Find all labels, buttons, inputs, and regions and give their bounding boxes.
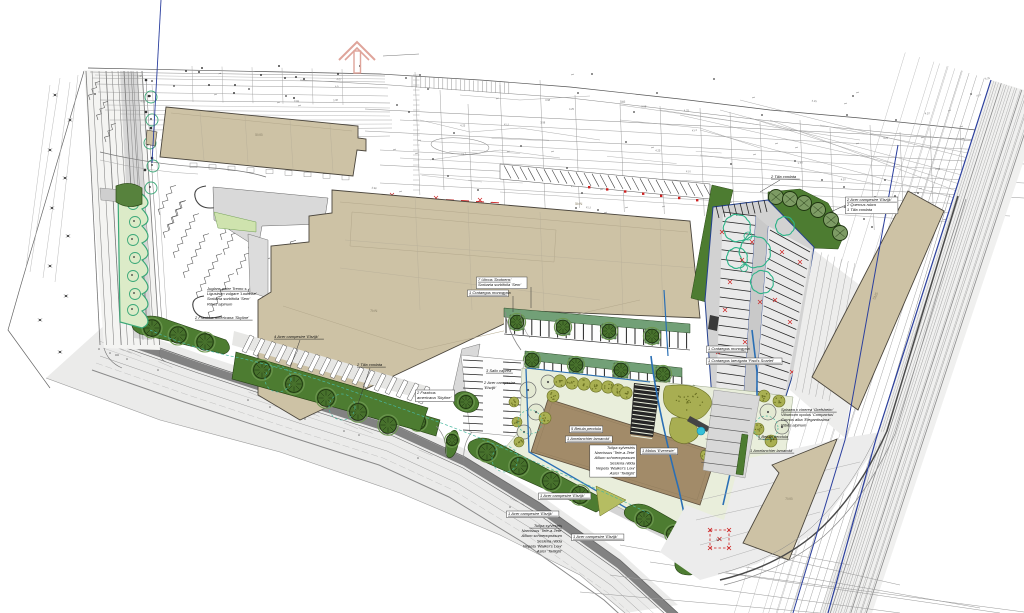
svg-text:americana 'Skyline': americana 'Skyline' [417,395,451,400]
svg-text:'Elsrijk': 'Elsrijk' [484,385,496,390]
svg-text:7M5: 7M5 [785,496,794,501]
svg-text:1 Crataegus laevigata 'Paul's: 1 Crataegus laevigata 'Paul's Scarlet' [708,358,774,363]
svg-text:1 Tilia cordata: 1 Tilia cordata [847,207,873,212]
svg-text:1 Amelanchier lamarckii: 1 Amelanchier lamarckii [567,436,609,441]
svg-text:4.07: 4.07 [686,169,692,173]
svg-text:VP: VP [716,538,721,542]
svg-text:Sorbaria sorbifolia 'Sem': Sorbaria sorbifolia 'Sem' [478,282,521,287]
svg-text:Aster 'Twilight': Aster 'Twilight' [536,549,562,554]
svg-text:3 Salix caprea: 3 Salix caprea [486,368,512,373]
svg-text:Ribes alpinum: Ribes alpinum [781,422,807,427]
svg-text:1 Acer campestre 'Elsrijk': 1 Acer campestre 'Elsrijk' [573,534,618,539]
svg-text:6 Betula pendula: 6 Betula pendula [758,434,789,439]
svg-text:5 Betula pendula: 5 Betula pendula [571,426,602,431]
svg-text:2 Tilia cordata: 2 Tilia cordata [356,362,383,367]
svg-text:Aster 'Twilight': Aster 'Twilight' [609,471,635,476]
svg-text:4.25: 4.25 [655,148,661,152]
svg-text:1 Acer campestre 'Elsrijk': 1 Acer campestre 'Elsrijk' [508,511,553,516]
svg-text:3.98: 3.98 [545,98,551,102]
svg-text:4.25: 4.25 [460,123,466,127]
svg-text:1 Malus 'Evereste': 1 Malus 'Evereste' [642,448,675,453]
svg-text:5b5: 5b5 [620,100,626,104]
svg-text:3.98: 3.98 [641,105,647,109]
svg-text:3.98: 3.98 [294,99,300,103]
svg-text:41.2: 41.2 [586,205,592,209]
svg-text:1 Crataegus monogyna: 1 Crataegus monogyna [469,290,511,295]
svg-text:1 Amelanchier lamarckii: 1 Amelanchier lamarckii [750,448,792,453]
svg-text:5M5: 5M5 [255,132,264,137]
svg-text:4.07: 4.07 [925,111,931,115]
svg-text:1 Acer campestre 'Elsrijk': 1 Acer campestre 'Elsrijk' [540,493,585,498]
svg-text:7bN: 7bN [370,308,377,313]
svg-text:2 Fraxinus americana 'Skyline': 2 Fraxinus americana 'Skyline' [194,315,249,320]
svg-text:41.2: 41.2 [504,122,510,126]
svg-text:3.98: 3.98 [140,99,146,103]
svg-text:2 Tilia cordata: 2 Tilia cordata [770,174,797,179]
svg-text:4.25: 4.25 [812,99,818,103]
svg-text:3.98: 3.98 [935,167,941,171]
svg-text:4.25: 4.25 [684,108,690,112]
svg-text:4.07: 4.07 [336,77,342,81]
svg-text:4 Acer campestre 'Elsrijk': 4 Acer campestre 'Elsrijk' [274,334,319,339]
svg-text:4.07: 4.07 [841,178,847,182]
svg-text:4.25: 4.25 [569,107,575,111]
svg-text:3.98: 3.98 [371,186,377,190]
svg-text:1 Crataegus monogyna: 1 Crataegus monogyna [708,346,750,351]
svg-text:Ribes alpinum: Ribes alpinum [207,301,233,306]
svg-text:3.98: 3.98 [540,120,546,124]
svg-text:5bN: 5bN [575,201,582,206]
svg-text:4.25: 4.25 [883,136,889,140]
